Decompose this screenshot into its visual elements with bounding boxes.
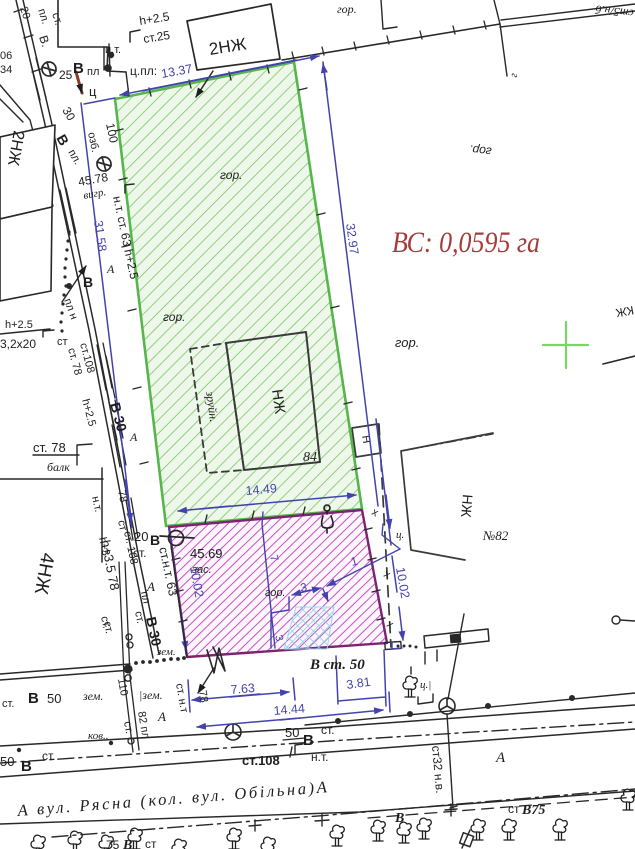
svg-text:ц.: ц. [396, 529, 404, 541]
svg-text:ст.: ст. [2, 698, 14, 710]
svg-text:ст.: ст. [101, 620, 115, 634]
svg-text:50: 50 [285, 725, 299, 740]
svg-text:ВС: 0,0595 га: ВС: 0,0595 га [392, 226, 540, 259]
svg-text:ц.пл:: ц.пл: [130, 64, 157, 78]
svg-text:25: 25 [59, 68, 73, 82]
svg-text:84: 84 [303, 450, 317, 465]
svg-text:В: В [394, 811, 404, 826]
svg-text:гор.: гор. [220, 168, 242, 182]
svg-text:3,2х20: 3,2х20 [0, 337, 36, 351]
svg-text:ст. 78: ст. 78 [33, 440, 66, 455]
svg-text:В: В [28, 690, 39, 707]
svg-text:ст.: ст. [42, 749, 56, 763]
svg-text:ст: ст [145, 837, 157, 849]
svg-text:h+2.5: h+2.5 [5, 319, 33, 331]
svg-text:зем.: зем. [82, 689, 103, 703]
svg-text:ц: ц [89, 84, 97, 99]
svg-text:14.49: 14.49 [245, 481, 277, 498]
svg-text:н.т.: н.т. [311, 750, 328, 764]
svg-text:НЖ: НЖ [268, 388, 288, 415]
svg-text:А: А [106, 262, 115, 276]
svg-text:В ст. 50: В ст. 50 [309, 657, 365, 673]
svg-text:75: 75 [106, 838, 120, 849]
svg-text:ц.|: ц.| [420, 679, 431, 691]
svg-text:пл: пл [87, 66, 99, 78]
svg-text:В: В [150, 532, 160, 548]
svg-text:балк: балк [47, 460, 70, 474]
svg-text:В75: В75 [521, 803, 545, 818]
svg-text:ков..: ков.. [88, 730, 109, 742]
svg-text:50: 50 [47, 691, 61, 706]
svg-text:НЖ: НЖ [458, 494, 476, 518]
svg-text:№82: №82 [482, 528, 509, 543]
svg-text:34: 34 [0, 64, 12, 76]
svg-text:гор.: гор. [265, 587, 286, 599]
svg-text:14.44: 14.44 [273, 701, 305, 718]
svg-text:06: 06 [0, 50, 12, 62]
svg-text:|зем.: |зем. [139, 688, 163, 702]
svg-text:78: 78 [115, 489, 129, 503]
svg-text:7.63: 7.63 [230, 681, 256, 697]
svg-text:А: А [157, 709, 166, 724]
svg-text:пл: пл [138, 590, 152, 605]
svg-text:ст.: ст. [321, 723, 335, 737]
svg-text:50: 50 [0, 754, 14, 769]
svg-text:45.69: 45.69 [190, 546, 223, 561]
svg-text:гор.: гор. [337, 2, 357, 16]
svg-text:ст: ст [508, 802, 520, 816]
svg-text:и.т.: и.т. [105, 44, 121, 56]
svg-text:20: 20 [134, 529, 148, 544]
svg-text:зем.: зем. [156, 646, 176, 658]
svg-text:78: 78 [196, 689, 210, 703]
svg-text:В: В [122, 838, 132, 849]
svg-text:В: В [73, 60, 84, 77]
svg-text:зас.: зас. [191, 564, 212, 576]
svg-text:В: В [303, 732, 314, 749]
svg-text:гор.: гор. [468, 142, 492, 159]
svg-text:ст.108: ст.108 [242, 753, 280, 768]
svg-text:В: В [83, 274, 93, 290]
svg-text:гор.: гор. [163, 310, 185, 324]
svg-text:ст.: ст. [121, 720, 135, 734]
svg-text:А: А [495, 750, 506, 766]
svg-text:ст.: ст. [133, 546, 147, 560]
svg-text:А: А [129, 430, 138, 444]
svg-text:гор.: гор. [395, 335, 419, 350]
svg-text:В: В [21, 758, 32, 775]
svg-text:ст: ст [57, 336, 68, 348]
